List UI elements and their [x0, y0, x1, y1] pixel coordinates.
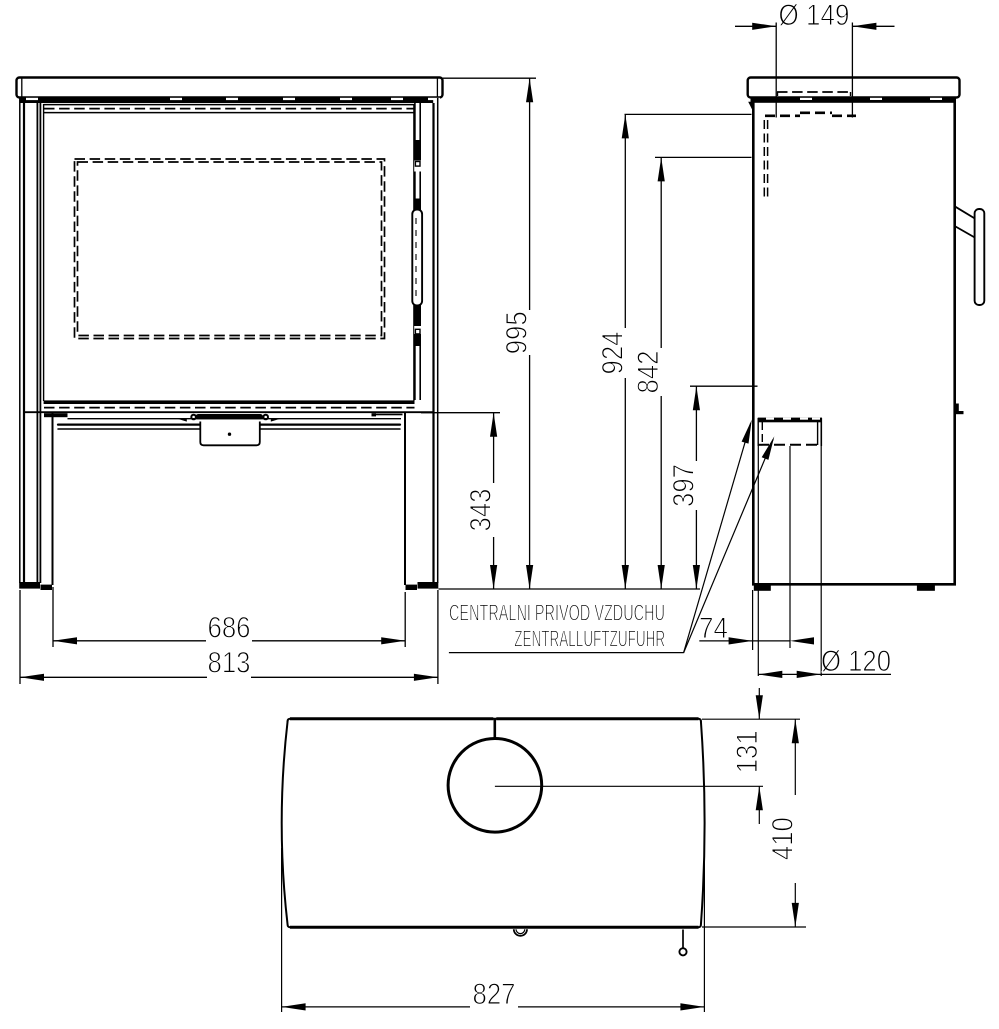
svg-text:CENTRALNI PRIVOD VZDUCHU: CENTRALNI PRIVOD VZDUCHU	[449, 600, 665, 626]
svg-text:924: 924	[596, 332, 629, 375]
svg-text:686: 686	[208, 612, 251, 645]
svg-text:ZENTRALLUFTZUFUHR: ZENTRALLUFTZUFUHR	[514, 626, 665, 652]
svg-text:131: 131	[731, 730, 764, 773]
svg-text:Ø 149: Ø 149	[779, 0, 850, 32]
svg-text:343: 343	[465, 488, 498, 531]
svg-text:813: 813	[208, 646, 251, 679]
svg-text:827: 827	[473, 978, 516, 1011]
svg-text:Ø 120: Ø 120	[821, 645, 891, 678]
svg-text:397: 397	[667, 464, 700, 507]
svg-text:842: 842	[632, 351, 665, 394]
svg-text:410: 410	[767, 817, 800, 860]
svg-text:74: 74	[699, 612, 728, 645]
svg-text:995: 995	[501, 311, 534, 354]
